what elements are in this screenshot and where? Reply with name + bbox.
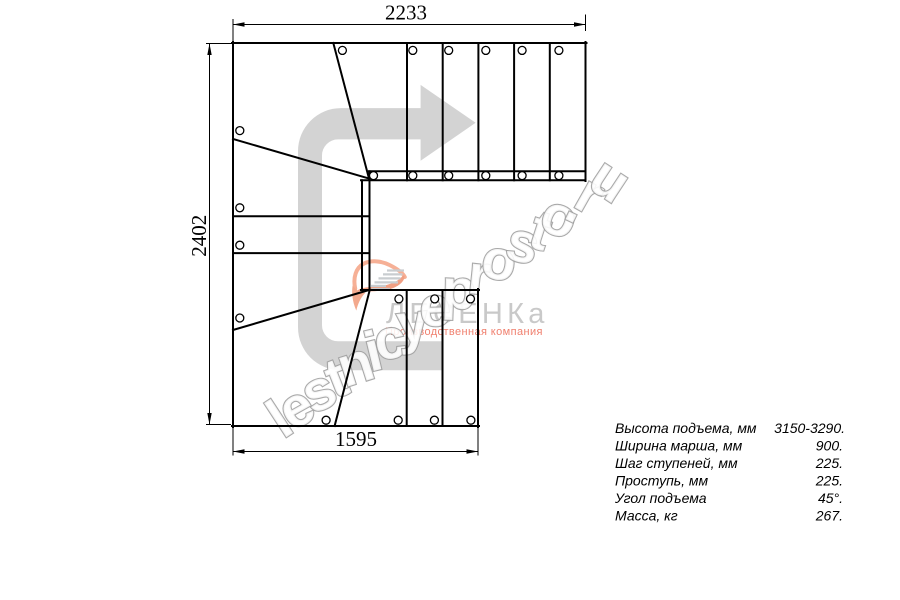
svg-text:Высота подъема, мм: Высота подъема, мм xyxy=(615,420,757,436)
svg-text:Угол подъема: Угол подъема xyxy=(614,490,707,506)
svg-text:Шаг ступеней, мм: Шаг ступеней, мм xyxy=(615,455,738,471)
svg-text:Масса, кг: Масса, кг xyxy=(615,507,678,523)
svg-text:225.: 225. xyxy=(815,472,843,488)
svg-text:45°.: 45°. xyxy=(818,490,843,506)
svg-text:2402: 2402 xyxy=(187,215,211,257)
svg-text:3150-3290.: 3150-3290. xyxy=(774,420,845,436)
svg-text:900.: 900. xyxy=(816,437,843,453)
svg-text:225.: 225. xyxy=(815,455,843,471)
svg-text:2233: 2233 xyxy=(385,1,427,25)
svg-text:267.: 267. xyxy=(815,507,843,523)
svg-text:1595: 1595 xyxy=(335,427,377,451)
svg-text:Ширина марша, мм: Ширина марша, мм xyxy=(615,437,743,453)
svg-text:Проступь, мм: Проступь, мм xyxy=(615,472,709,488)
